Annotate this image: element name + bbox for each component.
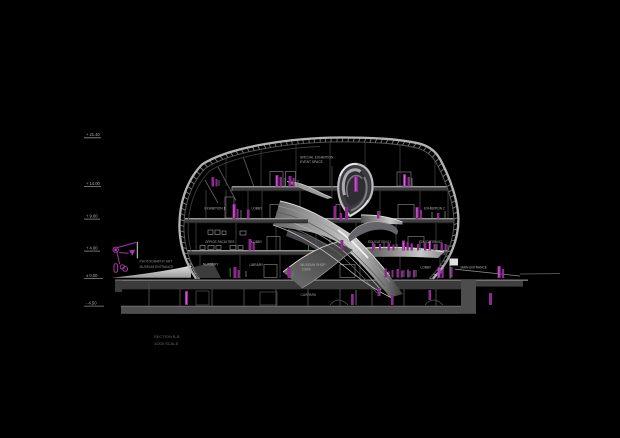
svg-text:+ 9.00: + 9.00 [86, 214, 98, 219]
svg-text:EXHIBITION 2: EXHIBITION 2 [424, 207, 445, 211]
svg-text:+ 4.00: + 4.00 [86, 246, 98, 251]
svg-text:MAIN ENTRANCE: MAIN ENTRANCE [461, 266, 487, 270]
svg-text:NURSERY: NURSERY [203, 263, 219, 267]
svg-text:MUSEUM SHOP: MUSEUM SHOP [301, 263, 327, 267]
svg-text:+ 14.00: + 14.00 [86, 181, 100, 186]
svg-text:EDUCATION 01: EDUCATION 01 [368, 240, 391, 244]
svg-text:LOBBY: LOBBY [252, 240, 264, 244]
svg-text:CAFE: CAFE [302, 268, 312, 272]
svg-text:MUSEUM ENTRANCE: MUSEUM ENTRANCE [140, 265, 175, 269]
svg-text:EVENT SPACE: EVENT SPACE [300, 160, 324, 164]
svg-text:LOBBY: LOBBY [252, 207, 264, 211]
svg-text:+ 21.40: + 21.40 [86, 132, 100, 137]
svg-text:EXHIBITION 1: EXHIBITION 1 [205, 207, 226, 211]
svg-text:EDUCATION 02: EDUCATION 02 [419, 240, 442, 244]
svg-text:± 0.00: ± 0.00 [86, 273, 98, 278]
svg-text:1/200 SCALE: 1/200 SCALE [154, 341, 179, 346]
svg-text:LOBBY: LOBBY [421, 266, 433, 270]
svg-text:- 4.50: - 4.50 [86, 301, 97, 306]
svg-text:LIBRARY: LIBRARY [250, 263, 264, 267]
svg-text:SPECIAL EXHIBITION: SPECIAL EXHIBITION [300, 155, 334, 159]
svg-text:OFFICE FACILITIES: OFFICE FACILITIES [205, 240, 234, 244]
svg-text:SECTION B-B: SECTION B-B [154, 334, 180, 339]
svg-text:PHOTOGRAPHY ART: PHOTOGRAPHY ART [140, 260, 173, 264]
svg-text:CARPARK: CARPARK [301, 293, 317, 297]
